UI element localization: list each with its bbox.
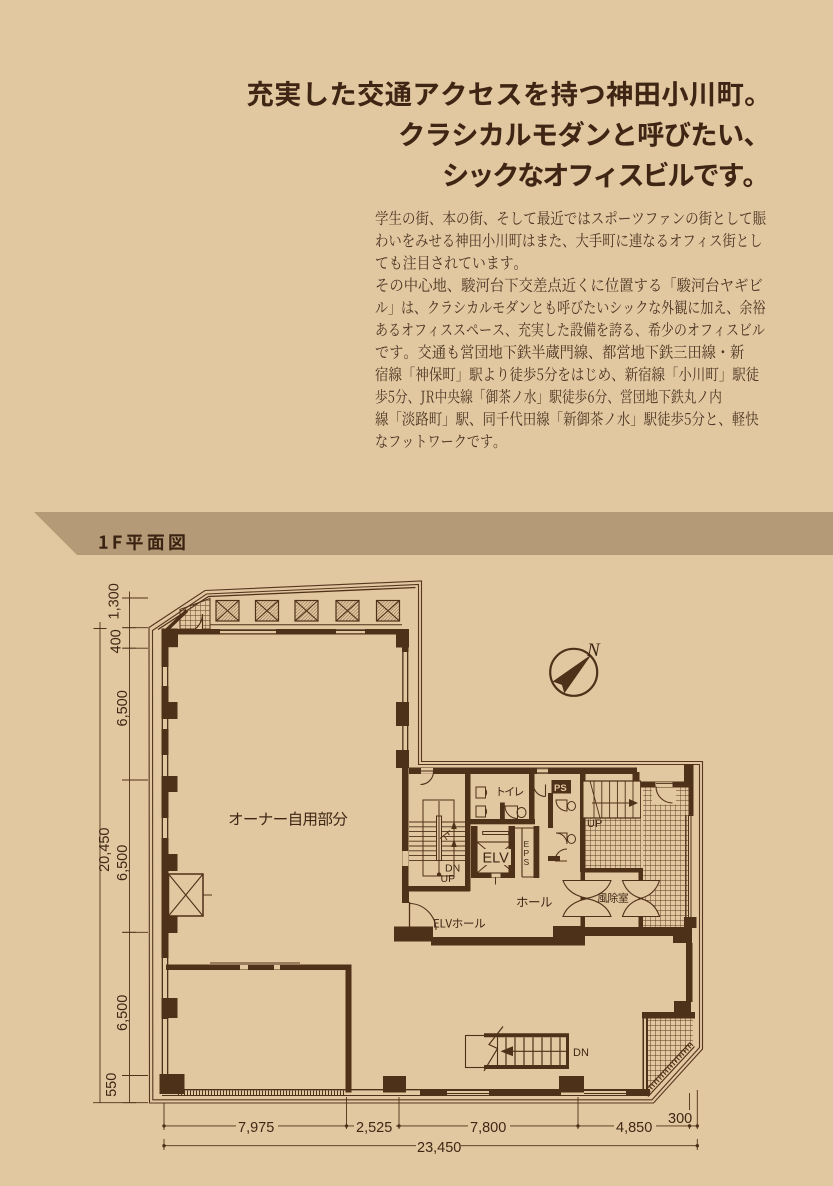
svg-text:7,800: 7,800 <box>470 1120 506 1136</box>
svg-text:6,500: 6,500 <box>115 690 131 726</box>
svg-text:2,525: 2,525 <box>356 1120 392 1136</box>
svg-text:7,975: 7,975 <box>238 1120 274 1136</box>
svg-text:23,450: 23,450 <box>417 1140 461 1156</box>
svg-text:20,450: 20,450 <box>97 828 113 872</box>
svg-text:UP: UP <box>441 873 456 885</box>
svg-text:PS: PS <box>554 783 567 794</box>
svg-text:ELV: ELV <box>483 851 510 867</box>
svg-text:N: N <box>586 640 601 661</box>
svg-text:300: 300 <box>668 1111 692 1127</box>
svg-text:S: S <box>524 857 530 867</box>
svg-text:550: 550 <box>104 1073 120 1097</box>
svg-text:1,300: 1,300 <box>107 583 123 619</box>
svg-text:4,850: 4,850 <box>616 1120 652 1136</box>
svg-text:400: 400 <box>109 629 125 653</box>
svg-text:DN: DN <box>573 1047 589 1059</box>
svg-text:6,500: 6,500 <box>115 995 131 1031</box>
svg-text:6,500: 6,500 <box>115 845 131 881</box>
